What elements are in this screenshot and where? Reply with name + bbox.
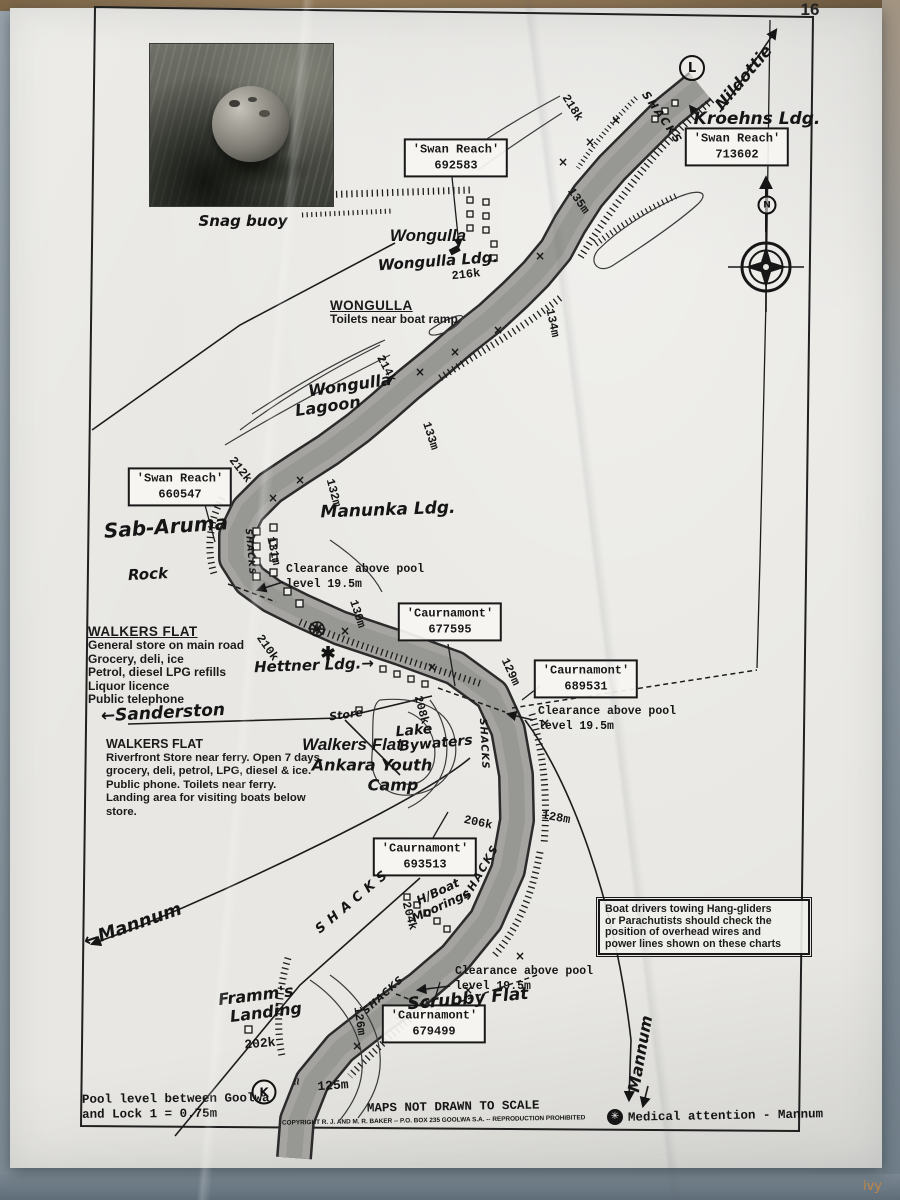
info-walkers-flat-road: WALKERS FLAT General store on main road …	[88, 624, 244, 707]
navbox-caurnamont-677595: 'Caurnamont' 677595	[398, 602, 502, 641]
map-canvas: ××× ××× ××× ××× ××× × ≈ WALKERS FLAT	[0, 0, 900, 1200]
navbox-caurnamont-689531: 'Caurnamont' 689531	[534, 659, 638, 698]
warning-line: Boat drivers towing Hang-gliders	[605, 904, 803, 916]
pool-level-note: Pool level between Goolwa and Lock 1 = 0…	[82, 1091, 270, 1122]
cut-off-page-title: WALKERS FLAT	[330, 0, 620, 7]
place-ankara-1: Ankara Youth	[312, 758, 432, 775]
info-line: Toilets near boat ramp	[330, 313, 458, 327]
navbox-code: 660547	[137, 487, 223, 503]
photo-watermark: ivy	[863, 1179, 882, 1194]
clearance-line: level 19.5m	[286, 577, 424, 592]
navbox-name: 'Swan Reach'	[413, 142, 499, 158]
height-126m: 126m	[351, 1006, 367, 1036]
info-walkers-flat-ferry: WALKERS FLAT Riverfront Store near ferry…	[106, 738, 323, 820]
navbox-code: 689531	[543, 679, 629, 695]
clearance-line: Clearance above pool	[455, 964, 593, 979]
svg-text:×: ×	[515, 949, 525, 963]
clearance-line: Clearance above pool	[538, 704, 676, 719]
info-title: WONGULLA	[330, 298, 458, 313]
snag-buoy-photo	[150, 44, 333, 206]
navbox-code: 713602	[694, 147, 780, 163]
navbox-name: 'Caurnamont'	[382, 841, 468, 857]
photo-caption: Snag buoy	[198, 214, 287, 230]
clearance-note-1: Clearance above pool level 19.5m	[286, 562, 424, 592]
info-title: WALKERS FLAT	[106, 738, 323, 752]
place-kroehns-landing: Kroehns Ldg.	[694, 111, 821, 129]
navbox-swan-reach-713602: 'Swan Reach' 713602	[685, 127, 789, 166]
svg-text:×: ×	[493, 323, 503, 337]
info-title: WALKERS FLAT	[88, 624, 244, 639]
navbox-name: 'Caurnamont'	[543, 663, 629, 679]
info-line: Landing area for visiting boats below	[106, 792, 323, 806]
svg-text:×: ×	[415, 365, 425, 379]
svg-text:×: ×	[611, 113, 621, 127]
svg-text:×: ×	[450, 345, 460, 359]
info-line: General store on main road	[88, 639, 244, 653]
navbox-name: 'Caurnamont'	[407, 606, 493, 622]
north-indicator: N	[758, 196, 777, 215]
place-rock: Rock	[128, 566, 169, 584]
km-post-202: 202k	[244, 1036, 276, 1052]
navbox-name: 'Swan Reach'	[694, 131, 780, 147]
svg-text:×: ×	[352, 1039, 362, 1053]
info-line: Petrol, diesel LPG refills	[88, 666, 244, 680]
snag-buoy	[212, 86, 289, 162]
place-ankara-2: Camp	[368, 778, 419, 795]
info-line: Public telephone	[88, 693, 244, 707]
info-wongulla: WONGULLA Toilets near boat ramp	[330, 298, 458, 327]
clearance-line: Clearance above pool	[286, 562, 424, 577]
map-page: ××× ××× ××× ××× ××× × ≈ WALKERS FLAT	[10, 8, 882, 1168]
lock-symbol-upper: L	[679, 55, 705, 81]
info-line: Public phone. Toilets near ferry.	[106, 779, 323, 793]
pool-level-line: Pool level between Goolwa	[82, 1091, 270, 1107]
warning-line: power lines shown on these charts	[605, 939, 803, 951]
warning-hang-gliders: Boat drivers towing Hang-gliders or Para…	[598, 899, 810, 955]
ferry-crossing-star: ✱	[320, 645, 335, 664]
medical-symbol-legend: ✳	[607, 1109, 623, 1125]
svg-text:×: ×	[295, 473, 305, 487]
svg-text:×: ×	[427, 660, 437, 674]
info-line: grocery, deli, petrol, LPG, diesel & ice…	[106, 765, 323, 779]
scale-note: MAPS NOT DRAWN TO SCALE	[367, 1098, 540, 1116]
navbox-code: 693513	[382, 857, 468, 873]
clearance-line: level 19.5m	[455, 979, 593, 994]
north-letter: N	[763, 200, 771, 210]
height-125m: 125m	[317, 1078, 349, 1094]
svg-text:×: ×	[558, 155, 568, 169]
pool-level-line: and Lock 1 = 0.75m	[82, 1106, 270, 1122]
page-number: 16	[801, 1, 820, 19]
km-post-216: 216k	[451, 267, 481, 283]
svg-text:×: ×	[535, 249, 545, 263]
clearance-note-3: Clearance above pool level 19.5m	[455, 964, 593, 994]
clearance-note-2: Clearance above pool level 19.5m	[538, 704, 676, 734]
navbox-name: 'Swan Reach'	[137, 471, 223, 487]
label-shacks-ferry: SHACKS	[476, 718, 489, 770]
navbox-swan-reach-660547: 'Swan Reach' 660547	[128, 467, 232, 506]
lock-letter: L	[688, 61, 696, 76]
info-line: store.	[106, 806, 323, 820]
svg-text:×: ×	[340, 624, 350, 638]
svg-text:×: ×	[268, 491, 278, 505]
navbox-code: 679499	[391, 1024, 477, 1040]
rapids-squiggle: ≈	[289, 1078, 304, 1086]
info-line: Riverfront Store near ferry. Open 7 days…	[106, 752, 323, 766]
place-wongulla-bold: Wongulla	[390, 227, 466, 245]
info-line: Grocery, deli, ice	[88, 653, 244, 667]
clearance-line: level 19.5m	[538, 719, 676, 734]
info-line: Liquor licence	[88, 680, 244, 694]
navbox-code: 692583	[413, 158, 499, 174]
medical-symbol-map	[310, 622, 324, 636]
svg-text:×: ×	[585, 135, 595, 149]
navbox-code: 677595	[407, 622, 493, 638]
navbox-swan-reach-692583: 'Swan Reach' 692583	[404, 138, 508, 177]
